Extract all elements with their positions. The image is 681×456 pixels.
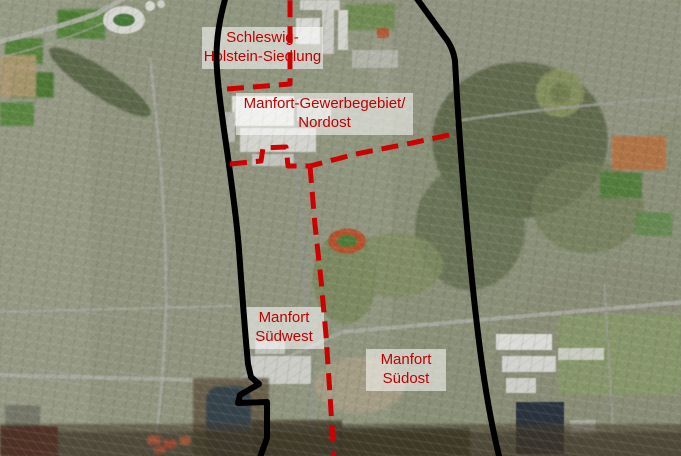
- region-label-line: Südost: [366, 369, 446, 388]
- region-label-line: Südwest: [244, 327, 324, 346]
- region-label-line: Manfort: [366, 350, 446, 369]
- region-label-manfort-suedost: Manfort Südost: [366, 349, 446, 391]
- region-label-line: Holstein-Siedlung: [202, 47, 323, 66]
- region-label-manfort-gewerbegebiet-nordost: Manfort-Gewerbegebiet/ Nordost: [236, 93, 413, 135]
- region-label-schleswig-holstein-siedlung: Schleswig- Holstein-Siedlung: [202, 27, 323, 69]
- region-label-line: Manfort: [244, 308, 324, 327]
- region-label-line: Manfort-Gewerbegebiet/: [236, 94, 413, 113]
- region-labels: Schleswig- Holstein-Siedlung Manfort-Gew…: [0, 0, 681, 456]
- region-label-line: Nordost: [236, 113, 413, 132]
- region-label-manfort-suedwest: Manfort Südwest: [244, 307, 324, 349]
- aerial-district-map: Schleswig- Holstein-Siedlung Manfort-Gew…: [0, 0, 681, 456]
- region-label-line: Schleswig-: [202, 28, 323, 47]
